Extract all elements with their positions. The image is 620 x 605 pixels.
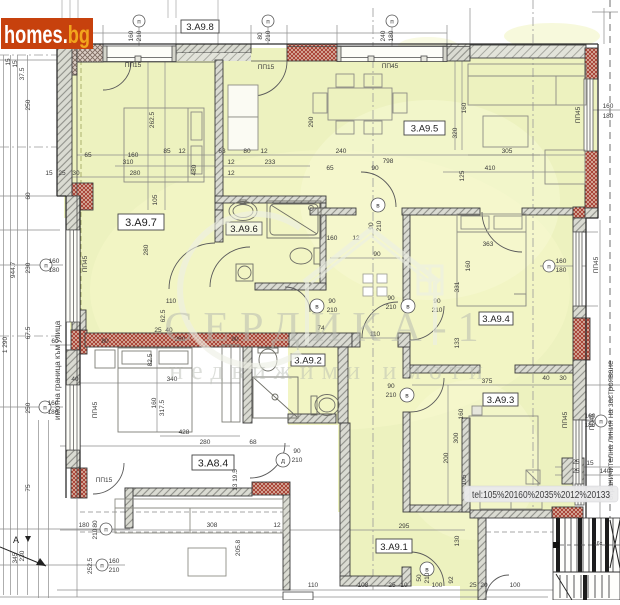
svg-text:233: 233	[265, 159, 276, 166]
svg-text:410: 410	[485, 165, 496, 172]
svg-text:16x: 16x	[594, 541, 603, 547]
svg-text:331: 331	[454, 281, 461, 292]
svg-text:25: 25	[572, 459, 580, 466]
svg-text:ПП15: ПП15	[258, 64, 275, 71]
svg-text:210: 210	[376, 220, 383, 231]
svg-text:25: 25	[572, 468, 580, 475]
svg-text:12: 12	[273, 522, 281, 529]
svg-text:в: в	[425, 567, 429, 574]
svg-text:200: 200	[443, 452, 450, 463]
svg-text:180: 180	[49, 267, 60, 274]
svg-text:80: 80	[257, 32, 264, 40]
svg-text:108: 108	[358, 582, 369, 589]
svg-text:63: 63	[218, 148, 226, 155]
svg-text:92: 92	[448, 576, 455, 584]
svg-text:295: 295	[399, 523, 410, 530]
svg-text:110: 110	[166, 298, 177, 305]
svg-text:210: 210	[109, 567, 120, 574]
svg-text:3.A8.4: 3.A8.4	[198, 458, 229, 470]
svg-text:160: 160	[461, 102, 468, 113]
svg-text:100: 100	[510, 582, 521, 589]
svg-text:25: 25	[388, 582, 396, 589]
svg-text:3.A9.7: 3.A9.7	[125, 217, 157, 229]
svg-text:160: 160	[109, 558, 120, 565]
svg-text:п: п	[266, 19, 270, 26]
svg-text:280: 280	[200, 439, 211, 446]
svg-text:317.5: 317.5	[159, 399, 166, 416]
svg-text:180: 180	[556, 267, 567, 274]
svg-text:210: 210	[265, 30, 272, 41]
svg-text:60: 60	[25, 192, 32, 200]
svg-text:798: 798	[383, 158, 394, 165]
svg-text:100: 100	[432, 582, 443, 589]
svg-text:160: 160	[151, 397, 158, 408]
svg-text:ПП45: ПП45	[562, 411, 569, 428]
svg-text:290: 290	[308, 116, 315, 127]
svg-text:160: 160	[128, 152, 139, 159]
svg-text:25: 25	[154, 327, 162, 334]
svg-text:65: 65	[84, 152, 92, 159]
svg-text:75: 75	[25, 484, 32, 492]
svg-text:ПП45: ПП45	[593, 256, 600, 273]
svg-text:280: 280	[130, 170, 141, 177]
svg-text:240: 240	[380, 30, 387, 41]
svg-text:85: 85	[163, 148, 171, 155]
svg-text:210: 210	[386, 392, 397, 399]
svg-text:428: 428	[179, 429, 190, 436]
svg-text:12: 12	[260, 148, 268, 155]
svg-text:40: 40	[71, 376, 79, 383]
svg-text:3.A9.5: 3.A9.5	[411, 124, 438, 135]
svg-text:ограничителна линия на застроя: ограничителна линия на застрояване	[606, 360, 615, 500]
svg-text:12: 12	[227, 159, 235, 166]
svg-text:п: п	[104, 527, 108, 534]
svg-text:250: 250	[25, 99, 32, 110]
svg-text:160: 160	[603, 103, 614, 110]
svg-text:180: 180	[388, 30, 395, 41]
svg-text:3.A9.3: 3.A9.3	[487, 395, 514, 406]
svg-text:д: д	[281, 458, 285, 465]
svg-text:ПП15: ПП15	[96, 477, 113, 484]
svg-text:ПП45: ПП45	[589, 413, 596, 430]
svg-text:15: 15	[45, 170, 53, 177]
svg-text:160: 160	[49, 258, 60, 265]
svg-text:363: 363	[483, 241, 494, 248]
svg-text:308: 308	[207, 522, 218, 529]
svg-text:480: 480	[191, 164, 198, 175]
svg-text:СЕРДИКА-1: СЕРДИКА-1	[164, 305, 489, 351]
svg-text:20: 20	[480, 582, 488, 589]
svg-text:3.A9.8: 3.A9.8	[186, 22, 213, 33]
svg-text:25: 25	[469, 582, 477, 589]
svg-text:имотна граница към улица: имотна граница към улица	[53, 320, 62, 420]
svg-text:90: 90	[328, 298, 336, 305]
svg-text:110: 110	[308, 582, 319, 589]
svg-text:25: 25	[58, 170, 66, 177]
svg-text:944.7: 944.7	[10, 261, 17, 278]
svg-text:50: 50	[416, 574, 423, 582]
svg-text:п: п	[547, 264, 551, 271]
svg-text:homes.bg: homes.bg	[4, 21, 90, 49]
svg-text:в: в	[376, 203, 380, 210]
svg-text:68: 68	[249, 439, 257, 446]
svg-text:160: 160	[556, 258, 567, 265]
svg-text:240: 240	[336, 148, 347, 155]
svg-text:ПП15: ПП15	[125, 62, 142, 69]
svg-text:12: 12	[227, 170, 235, 177]
svg-text:п: п	[100, 563, 104, 570]
svg-text:12: 12	[178, 148, 186, 155]
svg-text:252.5: 252.5	[87, 557, 94, 574]
svg-text:п: п	[137, 19, 141, 26]
svg-text:ПП45: ПП45	[382, 63, 399, 70]
svg-text:3.А9.6: 3.А9.6	[230, 224, 257, 235]
svg-text:90: 90	[293, 448, 301, 455]
svg-text:1 290: 1 290	[2, 336, 9, 353]
svg-text:310: 310	[123, 159, 134, 166]
svg-text:13 19.5: 13 19.5	[232, 469, 239, 491]
svg-text:п: п	[390, 19, 394, 26]
svg-text:в: в	[405, 393, 409, 400]
svg-text:125: 125	[459, 170, 466, 181]
svg-text:130: 130	[454, 535, 461, 546]
svg-text:90: 90	[387, 295, 395, 302]
svg-text:210: 210	[292, 457, 303, 464]
svg-text:160: 160	[327, 235, 338, 242]
svg-text:305: 305	[502, 148, 513, 155]
svg-text:90: 90	[371, 165, 379, 172]
svg-text:A: A	[13, 535, 19, 545]
svg-text:105: 105	[152, 194, 159, 205]
svg-text:15: 15	[5, 58, 12, 66]
svg-text:160: 160	[465, 260, 472, 271]
svg-text:15: 15	[586, 460, 594, 467]
svg-text:ПП45: ПП45	[92, 401, 99, 418]
svg-text:67.5: 67.5	[25, 326, 32, 339]
svg-text:65: 65	[326, 165, 334, 172]
svg-text:37.5: 37.5	[19, 67, 26, 80]
svg-text:160: 160	[458, 408, 465, 419]
svg-text:ПП45: ПП45	[575, 106, 582, 123]
svg-text:40: 40	[542, 375, 550, 382]
svg-text:80: 80	[101, 338, 109, 345]
svg-text:280: 280	[143, 244, 150, 255]
svg-text:180: 180	[603, 113, 614, 120]
svg-text:250: 250	[25, 402, 32, 413]
svg-text:262.5: 262.5	[149, 111, 156, 128]
svg-text:160: 160	[128, 30, 135, 41]
svg-text:80: 80	[243, 148, 251, 155]
svg-text:ПП45: ПП45	[82, 255, 89, 272]
svg-text:п: п	[599, 419, 603, 426]
svg-text:tel:105%20160%2035%2012%20133: tel:105%20160%2035%2012%20133	[472, 489, 610, 501]
svg-text:210: 210	[92, 528, 99, 539]
svg-text:недвижими имоти: недвижими имоти	[169, 356, 491, 385]
svg-text:210: 210	[136, 30, 143, 41]
svg-text:10: 10	[400, 582, 408, 589]
svg-text:15: 15	[12, 60, 19, 68]
svg-text:80: 80	[92, 520, 99, 528]
svg-text:180: 180	[79, 522, 90, 529]
svg-text:205.8: 205.8	[235, 539, 242, 556]
svg-text:210: 210	[424, 572, 431, 583]
svg-text:30: 30	[559, 375, 567, 382]
svg-text:3.A9.1: 3.A9.1	[380, 542, 407, 553]
svg-text:90: 90	[373, 251, 381, 258]
svg-text:230: 230	[25, 262, 32, 273]
svg-text:30: 30	[72, 170, 80, 177]
svg-text:320: 320	[452, 127, 459, 138]
svg-text:105: 105	[461, 474, 468, 485]
svg-text:82.5: 82.5	[147, 353, 154, 366]
svg-text:300: 300	[453, 432, 460, 443]
